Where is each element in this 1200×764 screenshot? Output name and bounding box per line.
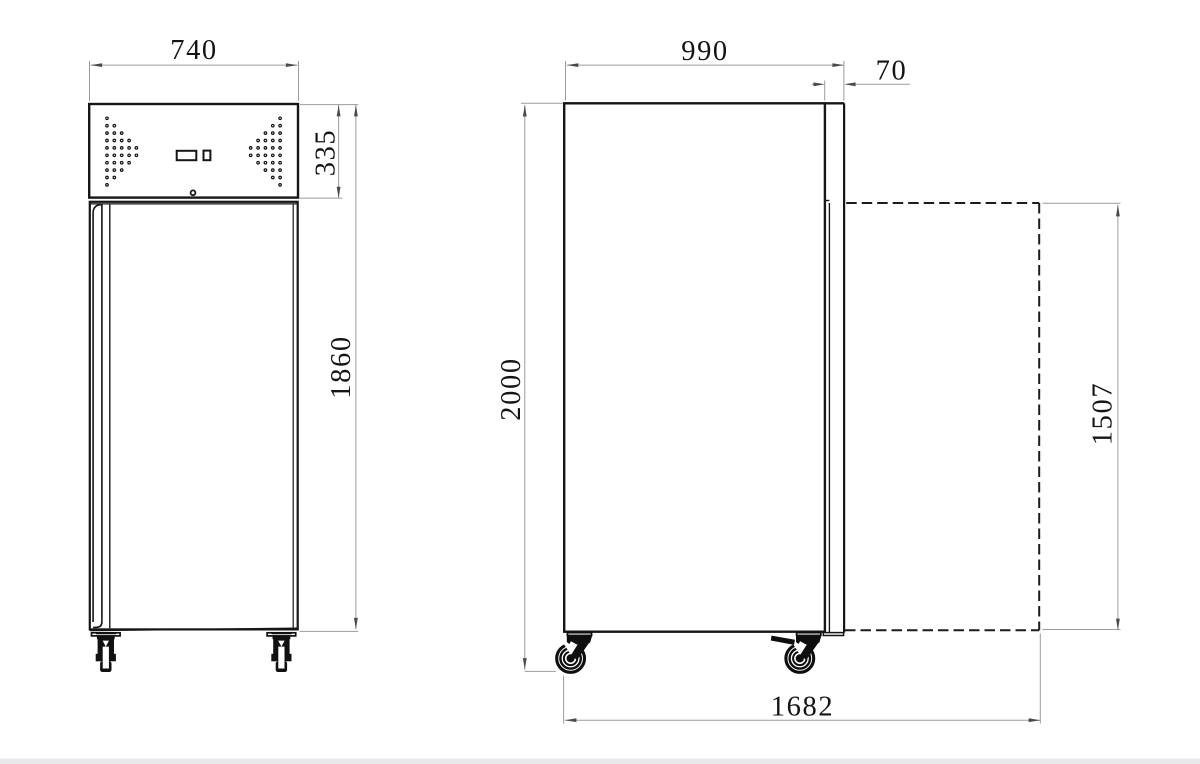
svg-text:70: 70: [876, 56, 908, 87]
svg-text:335: 335: [311, 129, 342, 177]
svg-text:990: 990: [681, 36, 729, 67]
svg-text:740: 740: [170, 35, 218, 66]
svg-text:1860: 1860: [326, 335, 357, 398]
svg-text:1507: 1507: [1088, 382, 1119, 445]
svg-text:2000: 2000: [496, 357, 527, 420]
svg-text:1682: 1682: [771, 692, 834, 723]
